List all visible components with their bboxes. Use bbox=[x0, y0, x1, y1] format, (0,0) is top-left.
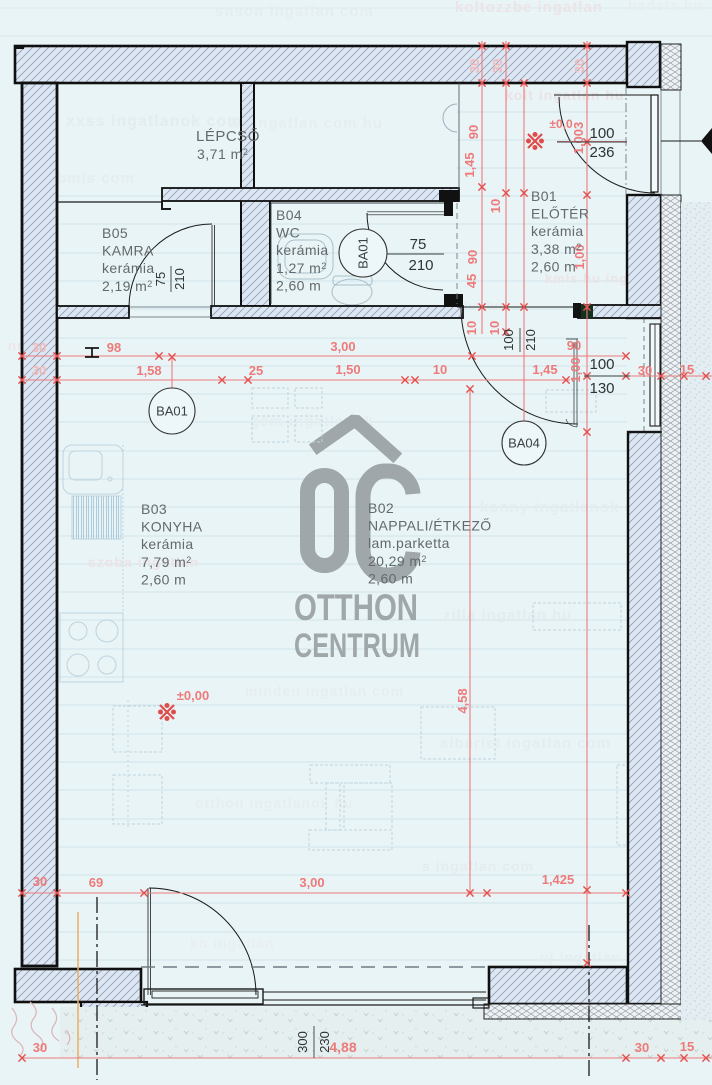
svg-text:90: 90 bbox=[466, 125, 481, 139]
svg-text:30: 30 bbox=[33, 1040, 47, 1055]
svg-text:BA01: BA01 bbox=[156, 404, 188, 419]
svg-text:B02: B02 bbox=[368, 500, 394, 516]
svg-text:10: 10 bbox=[488, 199, 503, 213]
svg-text:OTTHON: OTTHON bbox=[294, 587, 418, 628]
svg-text:30: 30 bbox=[572, 59, 587, 73]
svg-text:±0,00: ±0,00 bbox=[177, 688, 209, 703]
svg-text:100: 100 bbox=[589, 356, 614, 373]
svg-text:30: 30 bbox=[32, 363, 46, 378]
svg-text:90: 90 bbox=[465, 250, 480, 264]
svg-text:NAPPALI/ÉTKEZŐ: NAPPALI/ÉTKEZŐ bbox=[368, 518, 492, 534]
svg-text:LÉPCSŐ: LÉPCSŐ bbox=[196, 128, 260, 145]
svg-text:300: 300 bbox=[295, 1031, 310, 1053]
svg-text:lam.parketta: lam.parketta bbox=[368, 535, 450, 551]
svg-text:2,60 m: 2,60 m bbox=[531, 258, 576, 274]
svg-text:1,425: 1,425 bbox=[542, 872, 575, 887]
svg-text:10: 10 bbox=[464, 321, 479, 335]
svg-text:s ingatlan com: s ingatlan com bbox=[422, 858, 534, 874]
svg-text:3,71 m2: 3,71 m2 bbox=[197, 146, 248, 162]
svg-text:alberlet ingatlan com: alberlet ingatlan com bbox=[440, 735, 611, 752]
svg-text:WC: WC bbox=[276, 225, 300, 241]
svg-text:zilla ingatlan hu: zilla ingatlan hu bbox=[443, 607, 573, 624]
svg-text:4,88: 4,88 bbox=[329, 1039, 356, 1055]
svg-text:kerámia: kerámia bbox=[102, 260, 155, 276]
svg-text:75: 75 bbox=[410, 236, 427, 253]
svg-text:1,45: 1,45 bbox=[532, 362, 557, 377]
svg-text:bmls com: bmls com bbox=[57, 170, 135, 187]
svg-text:KONYHA: KONYHA bbox=[141, 519, 203, 535]
svg-text:ELŐTÉR: ELŐTÉR bbox=[531, 206, 589, 222]
svg-text:45: 45 bbox=[464, 274, 479, 288]
svg-text:minden ingatlan com: minden ingatlan com bbox=[245, 683, 404, 699]
svg-text:B03: B03 bbox=[141, 501, 167, 517]
svg-text:100: 100 bbox=[589, 125, 614, 142]
svg-text:30: 30 bbox=[32, 340, 46, 355]
svg-text:kerámia: kerámia bbox=[276, 242, 329, 258]
svg-text:130: 130 bbox=[589, 380, 614, 397]
svg-text:98: 98 bbox=[107, 340, 121, 355]
svg-text:230: 230 bbox=[317, 1031, 332, 1053]
svg-text:1,27 m2: 1,27 m2 bbox=[276, 260, 327, 276]
svg-text:±0,0: ±0,0 bbox=[549, 117, 573, 131]
svg-text:B01: B01 bbox=[531, 188, 557, 204]
svg-text:2,19 m2: 2,19 m2 bbox=[102, 278, 153, 294]
svg-text:uj ingatlan: uj ingatlan bbox=[540, 949, 621, 965]
svg-text:otthon ingatlanok hu: otthon ingatlanok hu bbox=[195, 795, 353, 811]
svg-text:kerámia: kerámia bbox=[531, 223, 584, 239]
svg-text:30: 30 bbox=[467, 59, 482, 73]
svg-text:CENTRUM: CENTRUM bbox=[294, 627, 420, 665]
svg-text:ko ingatlan: ko ingatlan bbox=[190, 935, 275, 951]
svg-text:30: 30 bbox=[638, 363, 652, 378]
svg-text:3,38 m2: 3,38 m2 bbox=[531, 241, 582, 257]
svg-text:15: 15 bbox=[680, 362, 694, 377]
svg-text:3,00: 3,00 bbox=[330, 339, 355, 354]
svg-text:10: 10 bbox=[487, 321, 502, 335]
svg-text:1,00: 1,00 bbox=[568, 357, 583, 382]
svg-text:bedste hu: bedste hu bbox=[628, 0, 703, 13]
svg-text:1,50: 1,50 bbox=[335, 362, 360, 377]
svg-text:10: 10 bbox=[433, 362, 447, 377]
svg-text:2,60 m: 2,60 m bbox=[276, 277, 321, 293]
svg-text:3,00: 3,00 bbox=[299, 875, 324, 890]
svg-text:236: 236 bbox=[589, 144, 614, 161]
svg-text:4,58: 4,58 bbox=[455, 688, 470, 713]
svg-text:30: 30 bbox=[33, 874, 47, 889]
svg-text:30: 30 bbox=[635, 1040, 649, 1055]
svg-text:30: 30 bbox=[490, 59, 505, 73]
svg-text:B04: B04 bbox=[276, 207, 302, 223]
svg-text:100: 100 bbox=[501, 329, 516, 351]
svg-text:kerámia: kerámia bbox=[141, 536, 194, 552]
svg-text:25: 25 bbox=[249, 363, 263, 378]
svg-text:20,29 m2: 20,29 m2 bbox=[368, 553, 427, 569]
svg-text:210: 210 bbox=[172, 268, 187, 290]
svg-text:7,79 m2: 7,79 m2 bbox=[141, 554, 192, 570]
svg-text:koltozzbe ingatlan: koltozzbe ingatlan bbox=[455, 0, 603, 16]
svg-text:75: 75 bbox=[153, 272, 168, 286]
svg-text:90: 90 bbox=[567, 338, 581, 353]
svg-text:snson ingatlan com: snson ingatlan com bbox=[215, 3, 374, 20]
svg-text:BA01: BA01 bbox=[356, 237, 371, 269]
svg-text:210: 210 bbox=[523, 329, 538, 351]
svg-text:1,58: 1,58 bbox=[136, 363, 161, 378]
svg-text:69: 69 bbox=[89, 875, 103, 890]
svg-text:210: 210 bbox=[408, 257, 433, 274]
svg-text:1,003: 1,003 bbox=[571, 122, 586, 155]
svg-text:1,45: 1,45 bbox=[462, 152, 477, 177]
svg-text:B05: B05 bbox=[102, 225, 128, 241]
svg-text:KAMRA: KAMRA bbox=[102, 243, 154, 259]
svg-text:2,60 m: 2,60 m bbox=[141, 571, 186, 587]
svg-text:BA04: BA04 bbox=[508, 436, 540, 451]
svg-text:15: 15 bbox=[680, 1039, 694, 1054]
svg-text:2,60 m: 2,60 m bbox=[368, 570, 413, 586]
